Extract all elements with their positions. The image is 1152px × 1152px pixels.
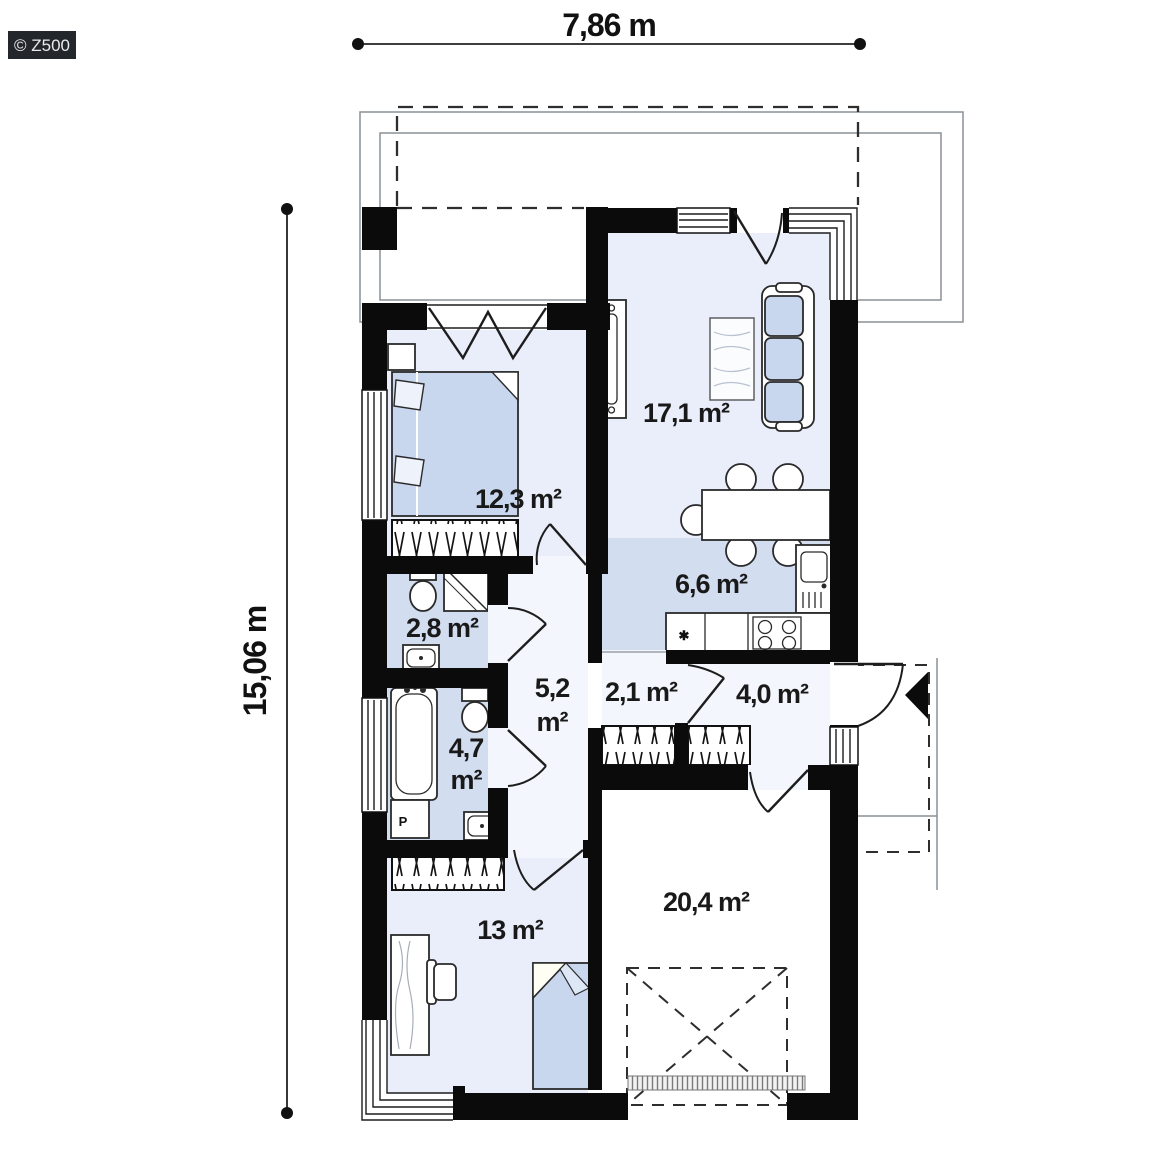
wardrobe-entry: [688, 726, 750, 765]
window-bathroom-west: [362, 698, 387, 812]
floor-plan-drawing: ✱: [0, 0, 1152, 1152]
label-bathroom-value: 4,7: [449, 733, 484, 763]
floor-plan-page: ✱: [0, 0, 1152, 1152]
window-bedroom-west: [362, 390, 387, 520]
label-entry: 4,0 m²: [736, 679, 809, 709]
garage-door-threshold: [628, 1076, 805, 1090]
wardrobe-closet: [602, 726, 675, 765]
window-entry-east: [830, 727, 858, 765]
label-bathroom-unit: m²: [451, 765, 483, 795]
dimension-width: 7,86 m: [352, 7, 866, 50]
window-living-north: [677, 208, 730, 233]
rug: [710, 318, 754, 400]
label-hall-value: 5,2: [535, 673, 570, 703]
washer-label: P: [399, 814, 408, 829]
logo: © Z500: [8, 31, 76, 59]
logo-text: © Z500: [14, 36, 70, 55]
label-living: 17,1 m²: [643, 398, 730, 428]
dimension-width-label: 7,86 m: [562, 7, 656, 43]
entrance-arrow-icon: [905, 672, 928, 719]
label-garage: 20,4 m²: [663, 887, 750, 917]
single-bed: [533, 963, 589, 1089]
label-kitchen: 6,6 m²: [675, 569, 748, 599]
floor-garage: [602, 790, 830, 1093]
sofa: [762, 283, 814, 431]
label-bedroom-second: 13 m²: [477, 915, 544, 945]
dimension-height-label: 15,06 m: [237, 606, 273, 716]
label-wc: 2,8 m²: [406, 613, 479, 643]
counter-symbol: ✱: [679, 628, 690, 643]
wardrobe-bedroom-main: [392, 520, 518, 558]
dimension-height: 15,06 m: [237, 203, 293, 1119]
kitchen-sink-unit: [796, 545, 832, 613]
roof-overhang-dashed: [397, 107, 858, 206]
label-hall-unit: m²: [537, 707, 569, 737]
label-closet: 2,1 m²: [605, 677, 678, 707]
kitchen-counter: ✱: [666, 613, 832, 652]
label-bedroom-main: 12,3 m²: [475, 484, 562, 514]
